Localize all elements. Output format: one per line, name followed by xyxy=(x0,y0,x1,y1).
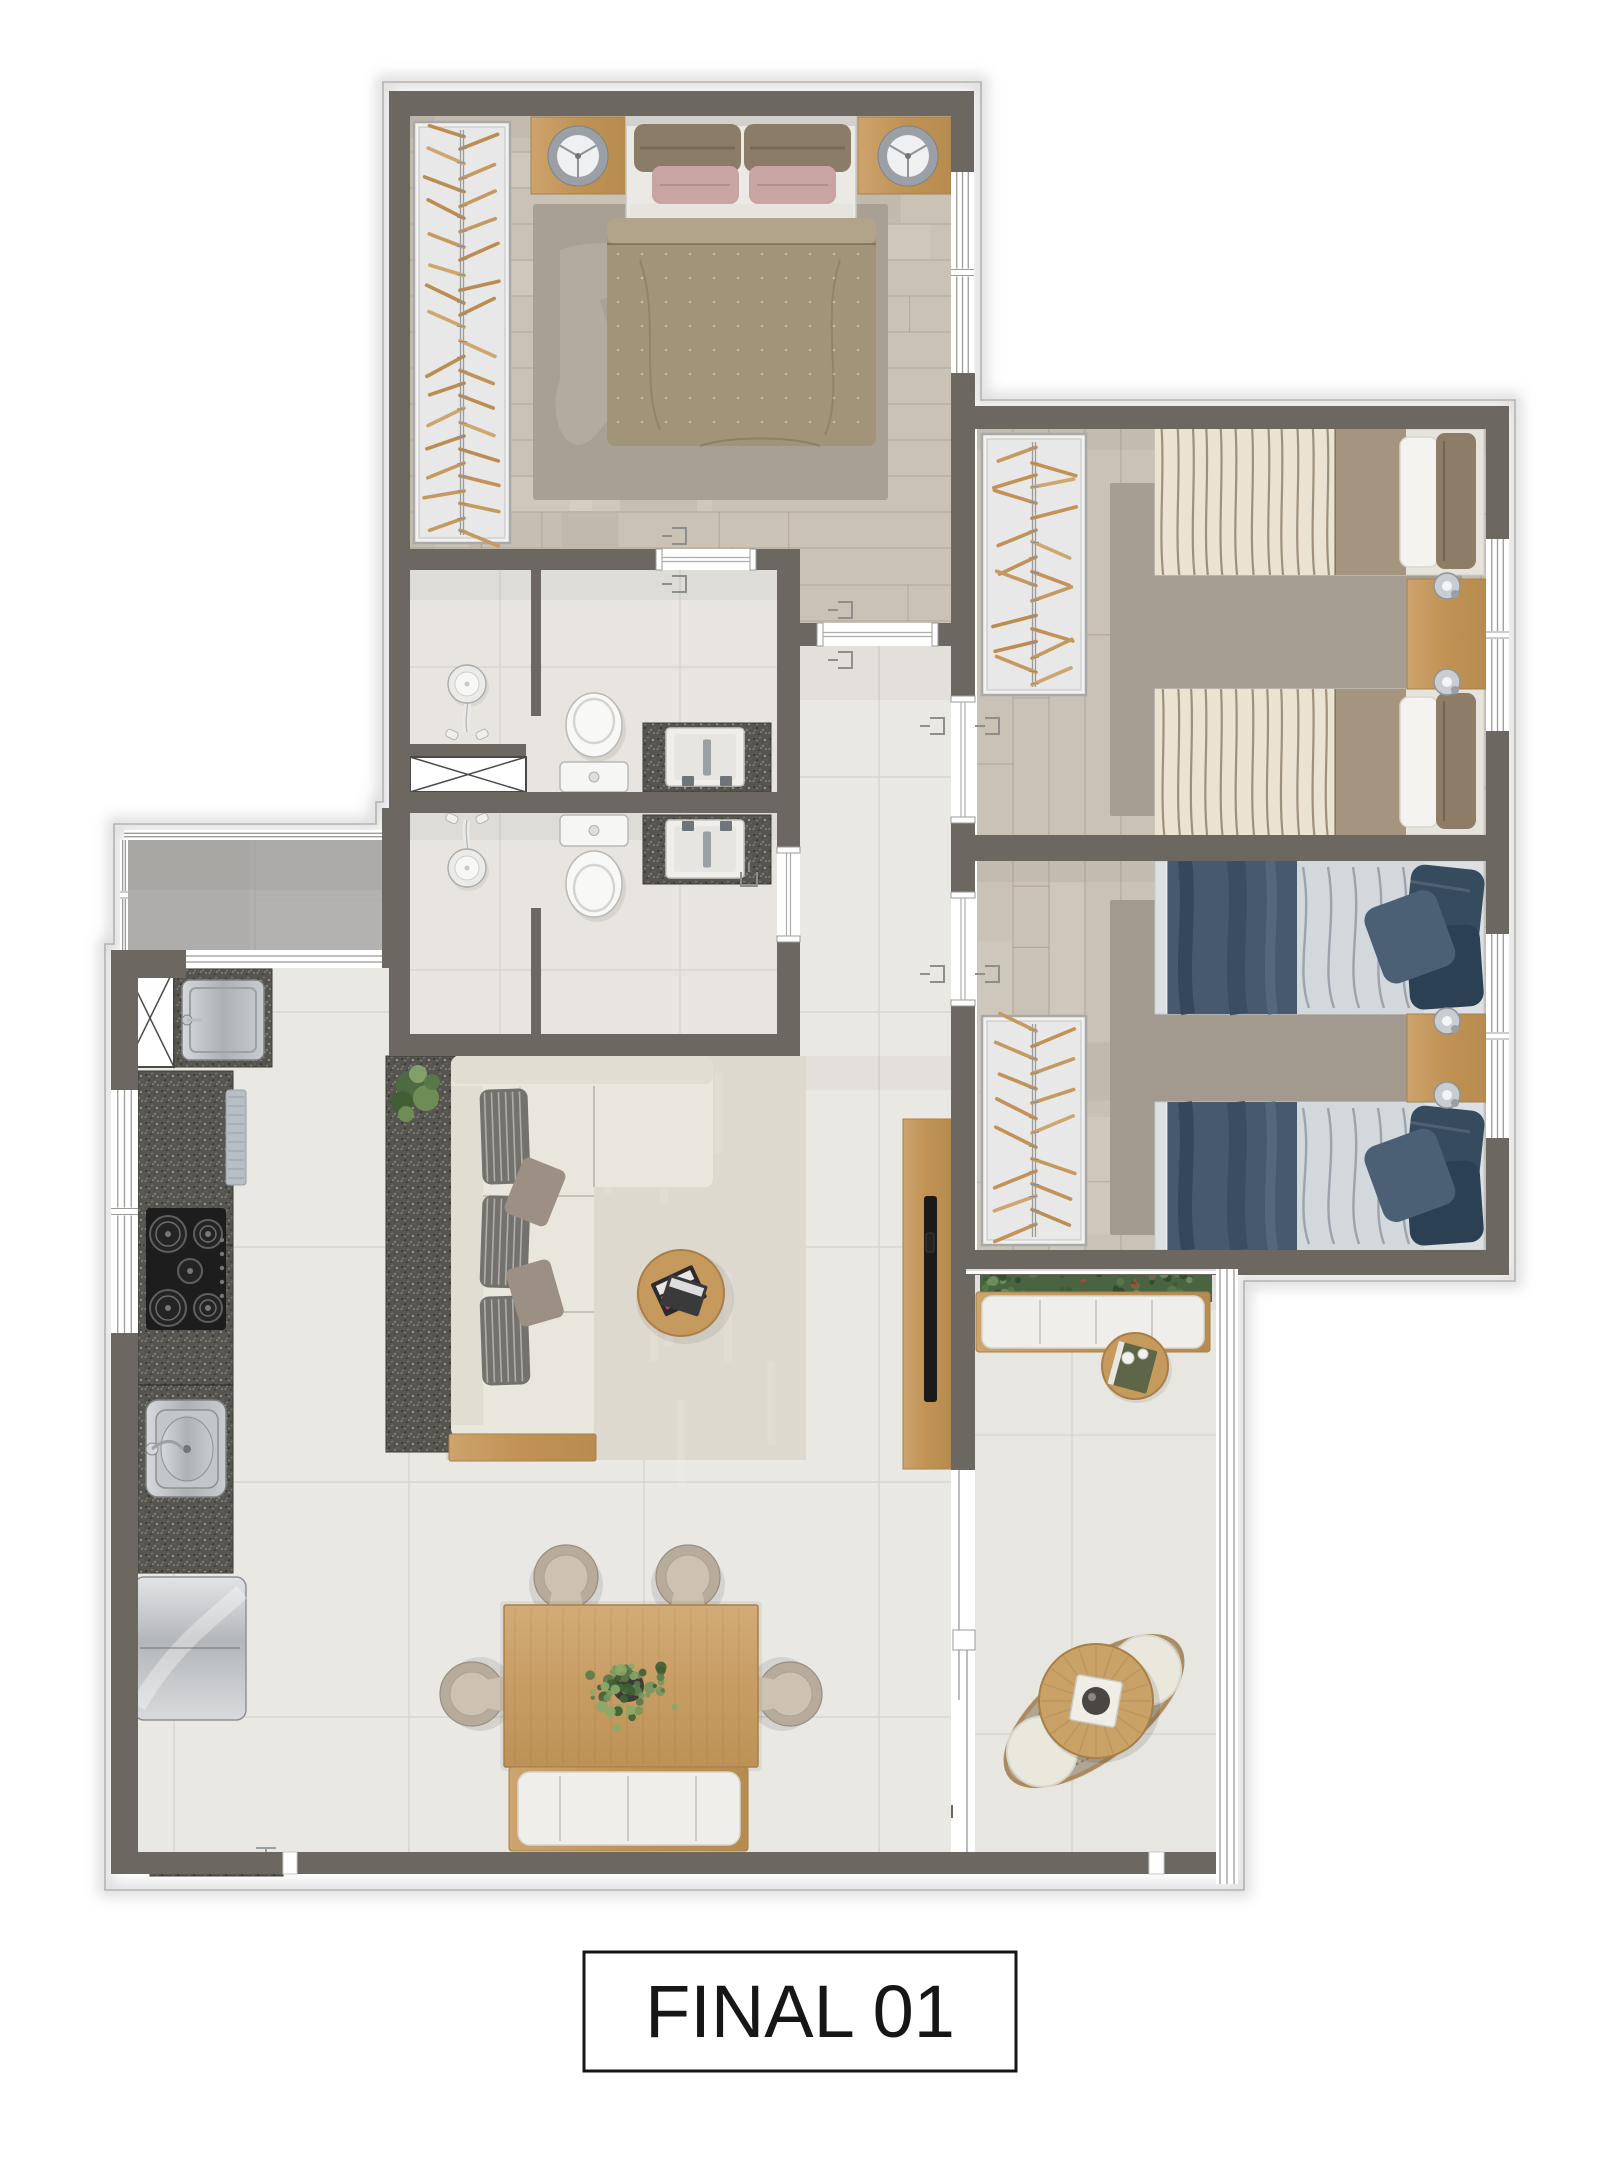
svg-text:FINAL 01: FINAL 01 xyxy=(645,1970,955,2053)
